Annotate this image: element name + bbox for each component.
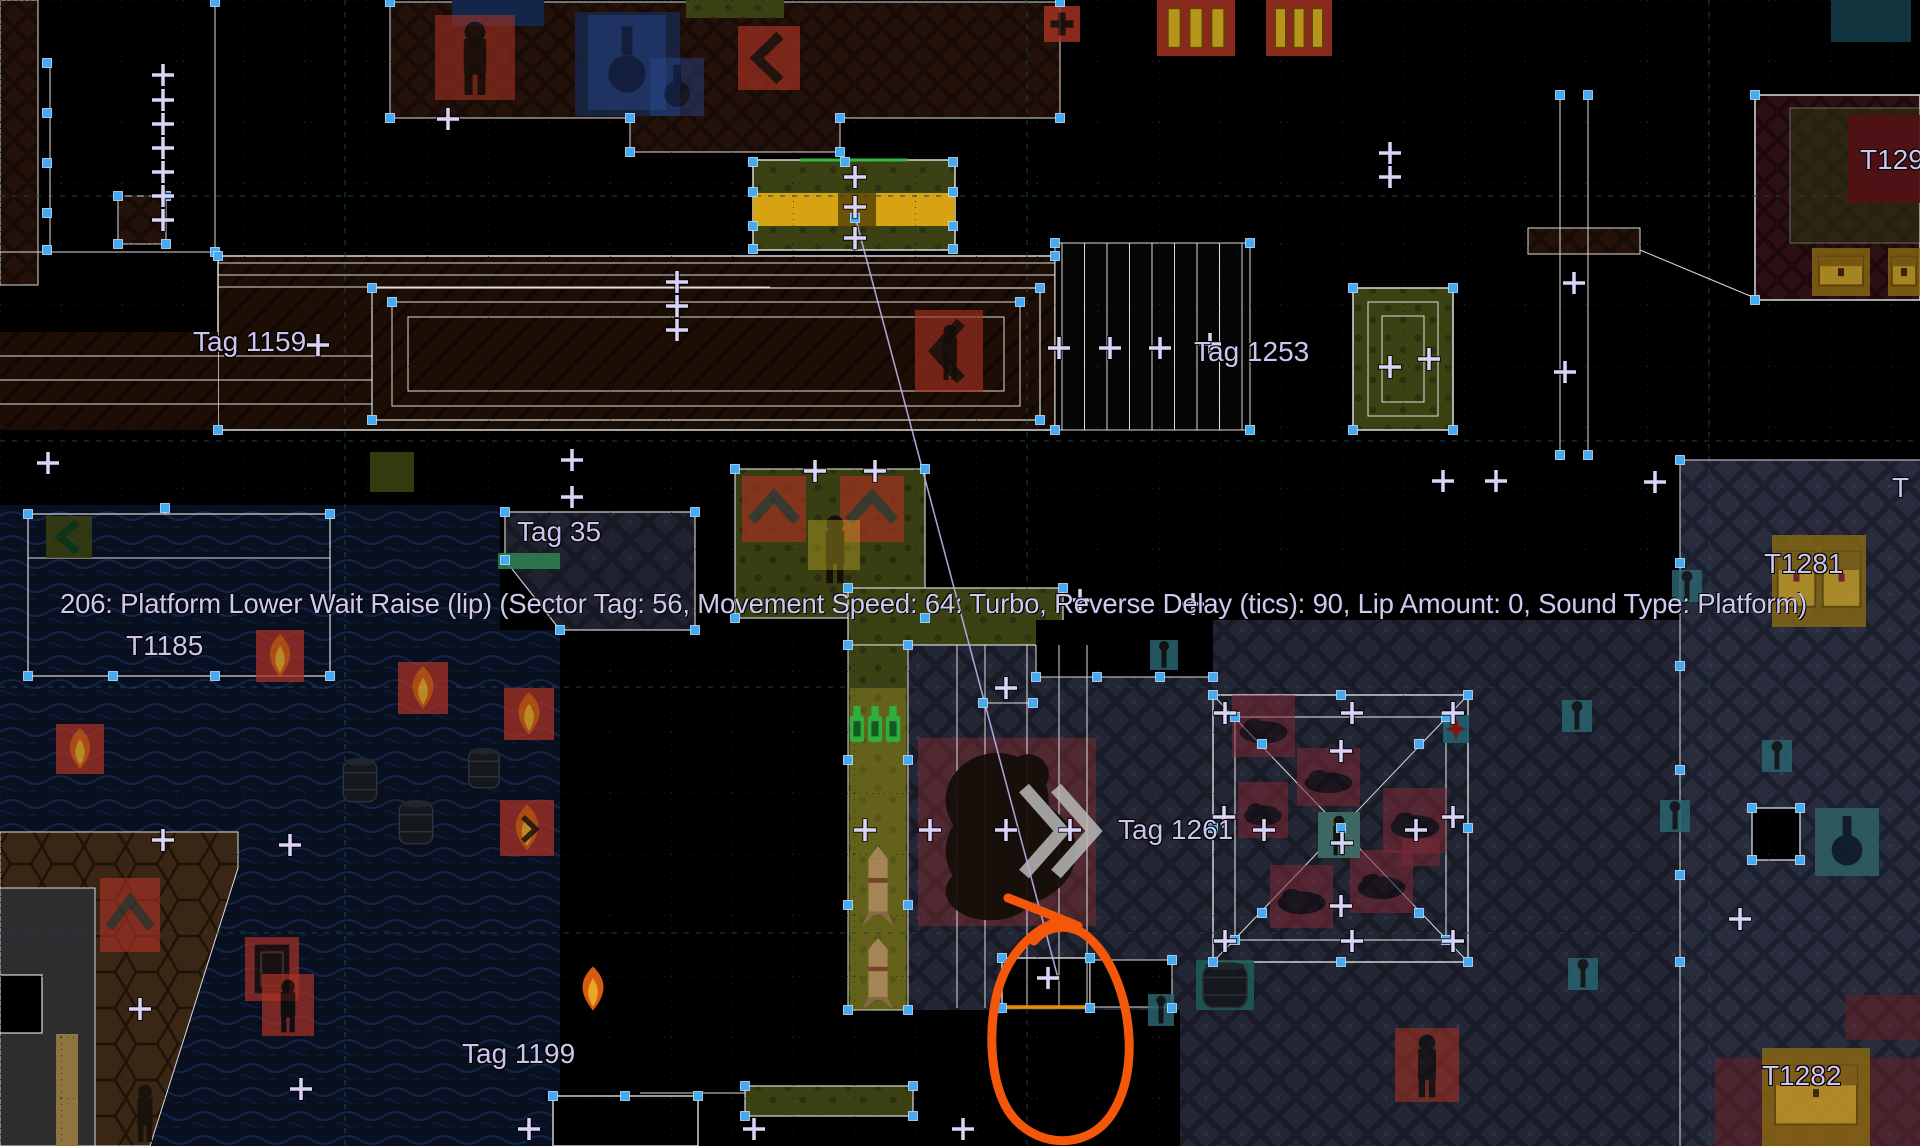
vertex[interactable] — [1751, 296, 1760, 305]
vertex[interactable] — [749, 222, 758, 231]
vertex[interactable] — [1156, 673, 1165, 682]
chevU-icon[interactable] — [100, 878, 160, 952]
vertex[interactable] — [626, 148, 635, 157]
vertex[interactable] — [211, 672, 220, 681]
chest-icon[interactable] — [1888, 248, 1920, 296]
vertex[interactable] — [1748, 856, 1757, 865]
cross-icon[interactable] — [1044, 6, 1080, 42]
vertex[interactable] — [161, 504, 170, 513]
barrel-icon[interactable] — [399, 800, 432, 844]
vertex[interactable] — [749, 188, 758, 197]
vertex[interactable] — [904, 756, 913, 765]
vertex[interactable] — [1209, 691, 1218, 700]
vertex[interactable] — [949, 158, 958, 167]
chevL-icon[interactable] — [738, 26, 800, 90]
vertex[interactable] — [949, 188, 958, 197]
vertex[interactable] — [691, 626, 700, 635]
vertex[interactable] — [844, 901, 853, 910]
vertex[interactable] — [731, 465, 740, 474]
vertex[interactable] — [1796, 856, 1805, 865]
vertex[interactable] — [1168, 956, 1177, 965]
vertex[interactable] — [1464, 958, 1473, 967]
vertex[interactable] — [501, 556, 510, 565]
vertex[interactable] — [388, 298, 397, 307]
vertex[interactable] — [1056, 0, 1065, 7]
vertex[interactable] — [43, 59, 52, 68]
vertex[interactable] — [1415, 740, 1424, 749]
vertex[interactable] — [114, 240, 123, 249]
chevL-icon[interactable] — [46, 516, 92, 558]
vertex[interactable] — [949, 245, 958, 254]
vertex[interactable] — [368, 416, 377, 425]
vertex[interactable] — [1016, 298, 1025, 307]
barrel-icon[interactable] — [1196, 960, 1254, 1010]
vertex[interactable] — [326, 672, 335, 681]
vertex[interactable] — [1349, 284, 1358, 293]
bars-icon[interactable] — [1157, 0, 1235, 56]
vertex[interactable] — [1086, 954, 1095, 963]
vertex[interactable] — [1093, 673, 1102, 682]
vertex[interactable] — [1051, 426, 1060, 435]
vertex[interactable] — [749, 245, 758, 254]
soldier-icon[interactable] — [1395, 1028, 1459, 1102]
vertex[interactable] — [1337, 691, 1346, 700]
vertex[interactable] — [1209, 824, 1218, 833]
vertex[interactable] — [43, 159, 52, 168]
vertex[interactable] — [24, 672, 33, 681]
vertex[interactable] — [114, 192, 123, 201]
vertex[interactable] — [844, 756, 853, 765]
vertex[interactable] — [1676, 456, 1685, 465]
vertex[interactable] — [844, 1006, 853, 1015]
vertex[interactable] — [549, 1092, 558, 1101]
flame-icon[interactable] — [256, 630, 304, 682]
key-icon[interactable] — [1568, 958, 1598, 990]
vertex[interactable] — [1584, 91, 1593, 100]
vertex[interactable] — [904, 641, 913, 650]
chevU-icon[interactable] — [742, 476, 806, 542]
vertex[interactable] — [626, 114, 635, 123]
flask-icon[interactable] — [1815, 808, 1879, 876]
vertex[interactable] — [1415, 909, 1424, 918]
vertex[interactable] — [214, 252, 223, 261]
vertex[interactable] — [949, 222, 958, 231]
vertex[interactable] — [1796, 804, 1805, 813]
vertex[interactable] — [109, 672, 118, 681]
vertex[interactable] — [841, 158, 850, 167]
vertex[interactable] — [1036, 416, 1045, 425]
vertex[interactable] — [43, 209, 52, 218]
map-editor-canvas[interactable]: Tag 1159 Tag 1253 Tag 35 T1185 T1281 Tag… — [0, 0, 1920, 1146]
chest-icon[interactable] — [1812, 248, 1870, 296]
barrel-icon[interactable] — [343, 758, 376, 802]
vertex[interactable] — [844, 641, 853, 650]
vertex[interactable] — [1246, 239, 1255, 248]
vertex[interactable] — [1556, 91, 1565, 100]
vertex[interactable] — [921, 465, 930, 474]
vertex[interactable] — [1584, 451, 1593, 460]
map-view[interactable] — [0, 0, 1920, 1146]
vertex[interactable] — [1036, 284, 1045, 293]
vertex[interactable] — [1032, 673, 1041, 682]
vertex[interactable] — [909, 1112, 918, 1121]
linedef-action-info-readout: 206: Platform Lower Wait Raise (lip) (Se… — [60, 588, 1807, 620]
vertex[interactable] — [1676, 871, 1685, 880]
vertex[interactable] — [998, 954, 1007, 963]
soldier-icon[interactable] — [262, 974, 314, 1036]
vertex[interactable] — [501, 508, 510, 517]
vertex[interactable] — [1676, 662, 1685, 671]
vertex[interactable] — [836, 114, 845, 123]
chest-icon[interactable] — [1762, 1048, 1870, 1146]
vertex[interactable] — [741, 1082, 750, 1091]
vertex[interactable] — [1449, 426, 1458, 435]
vertex[interactable] — [1556, 451, 1565, 460]
vertex[interactable] — [1349, 426, 1358, 435]
vertex[interactable] — [386, 114, 395, 123]
flame-icon[interactable] — [504, 688, 554, 740]
sprite-icon[interactable] — [808, 520, 860, 570]
vertex[interactable] — [979, 699, 988, 708]
vertex[interactable] — [1246, 426, 1255, 435]
vertex[interactable] — [1748, 804, 1757, 813]
vertex[interactable] — [621, 1092, 630, 1101]
vertex[interactable] — [211, 0, 220, 7]
flame-icon[interactable] — [398, 662, 448, 714]
vertex[interactable] — [1258, 909, 1267, 918]
key-icon[interactable] — [1762, 740, 1792, 772]
vertex[interactable] — [904, 1006, 913, 1015]
vertex[interactable] — [43, 246, 52, 255]
vertex[interactable] — [1029, 699, 1038, 708]
vertex[interactable] — [214, 426, 223, 435]
vertex[interactable] — [741, 1112, 750, 1121]
corpse-icon[interactable] — [1350, 850, 1413, 913]
key-icon[interactable] — [1660, 800, 1690, 832]
flask-icon[interactable] — [650, 58, 704, 116]
vertex[interactable] — [386, 0, 395, 7]
barrel-icon[interactable] — [469, 748, 499, 788]
corpse-icon[interactable] — [1297, 748, 1360, 806]
vertex[interactable] — [556, 626, 565, 635]
vertex[interactable] — [1056, 114, 1065, 123]
vertex[interactable] — [1168, 1004, 1177, 1013]
vertex[interactable] — [909, 1082, 918, 1091]
vertex[interactable] — [1676, 766, 1685, 775]
sprite-icon[interactable] — [370, 452, 414, 492]
sprite-icon[interactable] — [1848, 115, 1920, 203]
vertex[interactable] — [1464, 824, 1473, 833]
vertex[interactable] — [691, 508, 700, 517]
vertex[interactable] — [326, 510, 335, 519]
vertex[interactable] — [1464, 691, 1473, 700]
vertex[interactable] — [162, 240, 171, 249]
key-icon[interactable] — [1562, 700, 1592, 732]
soldier-icon[interactable] — [435, 15, 515, 100]
sprite-icon[interactable] — [1831, 0, 1911, 42]
vertex[interactable] — [1676, 559, 1685, 568]
flame-icon[interactable] — [56, 724, 104, 774]
corpse-icon[interactable] — [1270, 865, 1333, 928]
vertex[interactable] — [749, 158, 758, 167]
vertex[interactable] — [43, 109, 52, 118]
vertex[interactable] — [24, 510, 33, 519]
vertex[interactable] — [694, 1092, 703, 1101]
vertex[interactable] — [836, 148, 845, 157]
vertex[interactable] — [1086, 1004, 1095, 1013]
vertex[interactable] — [1751, 91, 1760, 100]
vertex[interactable] — [1337, 958, 1346, 967]
vertex[interactable] — [1209, 958, 1218, 967]
vertex[interactable] — [904, 901, 913, 910]
vertex[interactable] — [1258, 740, 1267, 749]
vertex[interactable] — [1449, 284, 1458, 293]
key-icon[interactable] — [1150, 640, 1178, 670]
vertex[interactable] — [1676, 958, 1685, 967]
vertex[interactable] — [1051, 239, 1060, 248]
vertex[interactable] — [1209, 673, 1218, 682]
vertex[interactable] — [1051, 252, 1060, 261]
bars-icon[interactable] — [1266, 0, 1332, 56]
flame-icon[interactable] — [500, 800, 554, 856]
vertex[interactable] — [368, 284, 377, 293]
